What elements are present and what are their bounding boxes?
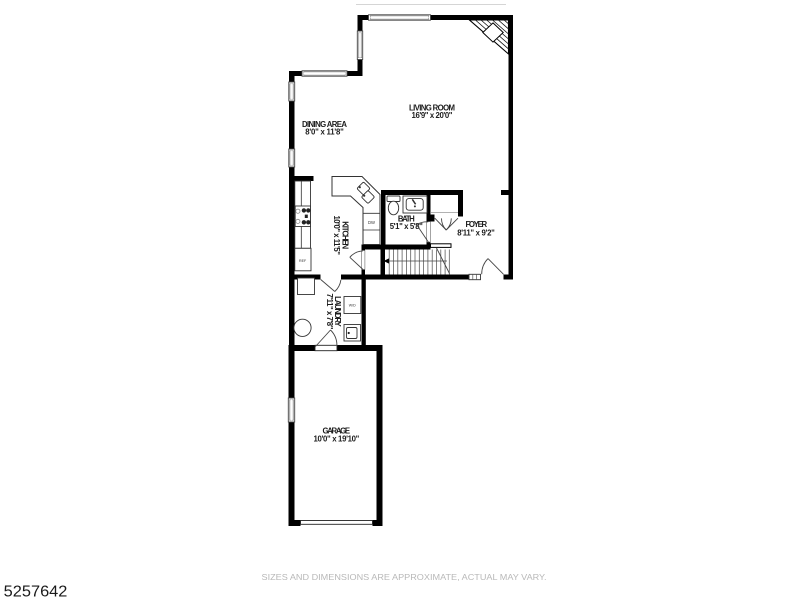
svg-text:8'0" x 11'8": 8'0" x 11'8": [305, 128, 344, 137]
svg-text:7'11" x 7'8": 7'11" x 7'8": [325, 293, 334, 329]
svg-text:16'9" x 20'0": 16'9" x 20'0": [412, 111, 453, 120]
svg-text:W/D: W/D: [349, 304, 356, 308]
svg-text:10'0" x 19'10": 10'0" x 19'10": [314, 435, 360, 444]
svg-text:10'0" x 11'5": 10'0" x 11'5": [332, 215, 341, 255]
svg-text:5257642: 5257642: [4, 584, 68, 600]
svg-text:8'11" x 9'2": 8'11" x 9'2": [457, 228, 495, 237]
svg-text:REF: REF: [299, 259, 307, 263]
svg-text:DW: DW: [368, 220, 375, 225]
svg-text:SIZES AND DIMENSIONS ARE APPRO: SIZES AND DIMENSIONS ARE APPROXIMATE, AC…: [262, 572, 547, 582]
